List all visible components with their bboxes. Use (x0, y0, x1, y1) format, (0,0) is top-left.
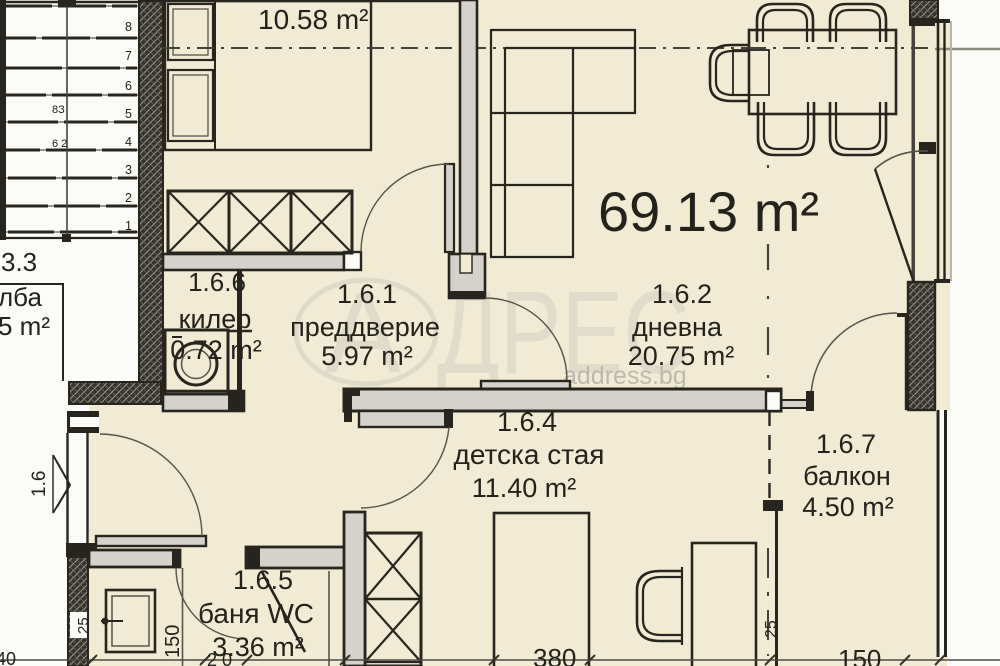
svg-text:1.6: 1.6 (29, 471, 50, 497)
svg-text:детска стая: детска стая (454, 439, 605, 470)
svg-text:150: 150 (838, 644, 881, 666)
svg-text:6 2: 6 2 (52, 138, 67, 150)
svg-text:4: 4 (125, 135, 132, 149)
svg-text:25: 25 (75, 617, 92, 634)
svg-text:преддверие: преддверие (290, 312, 440, 342)
svg-text:1.6.6: 1.6.6 (188, 267, 246, 297)
svg-text:0.72 m²: 0.72 m² (170, 335, 262, 365)
svg-text:7: 7 (125, 49, 132, 63)
svg-text:40: 40 (0, 649, 16, 666)
svg-text:11.40 m²: 11.40 m² (472, 473, 577, 503)
svg-text:1.6.2: 1.6.2 (652, 279, 712, 309)
svg-text:25: 25 (763, 620, 780, 638)
svg-text:10.58 m²: 10.58 m² (258, 4, 369, 35)
svg-text:1.6.5: 1.6.5 (233, 565, 293, 595)
svg-text:2 0: 2 0 (207, 650, 232, 666)
svg-text:4.50 m²: 4.50 m² (802, 492, 894, 522)
svg-text:8: 8 (125, 20, 132, 34)
svg-text:150: 150 (162, 625, 184, 658)
svg-text:1.6.1: 1.6.1 (337, 279, 397, 309)
svg-text:5.97 m²: 5.97 m² (321, 341, 413, 371)
svg-text:1.6.4: 1.6.4 (497, 407, 557, 437)
svg-text:380: 380 (533, 643, 576, 666)
svg-text:8З: 8З (52, 104, 65, 116)
svg-text:лба: лба (0, 282, 42, 312)
svg-text:5: 5 (125, 107, 132, 121)
svg-text:балкон: балкон (803, 461, 891, 491)
svg-text:5 m²: 5 m² (0, 311, 50, 341)
svg-text:3.3: 3.3 (1, 247, 37, 277)
svg-text:6: 6 (125, 79, 132, 93)
svg-text:дневна: дневна (632, 312, 723, 342)
svg-text:2: 2 (125, 191, 132, 205)
svg-text:1.6.7: 1.6.7 (816, 429, 876, 459)
svg-text:1: 1 (125, 219, 132, 233)
svg-text:69.13 m²: 69.13 m² (598, 180, 819, 243)
svg-text:3: 3 (125, 163, 132, 177)
svg-text:баня WC: баня WC (198, 598, 314, 629)
svg-text:20.75 m²: 20.75 m² (628, 341, 735, 371)
svg-text:килер: килер (179, 304, 252, 334)
